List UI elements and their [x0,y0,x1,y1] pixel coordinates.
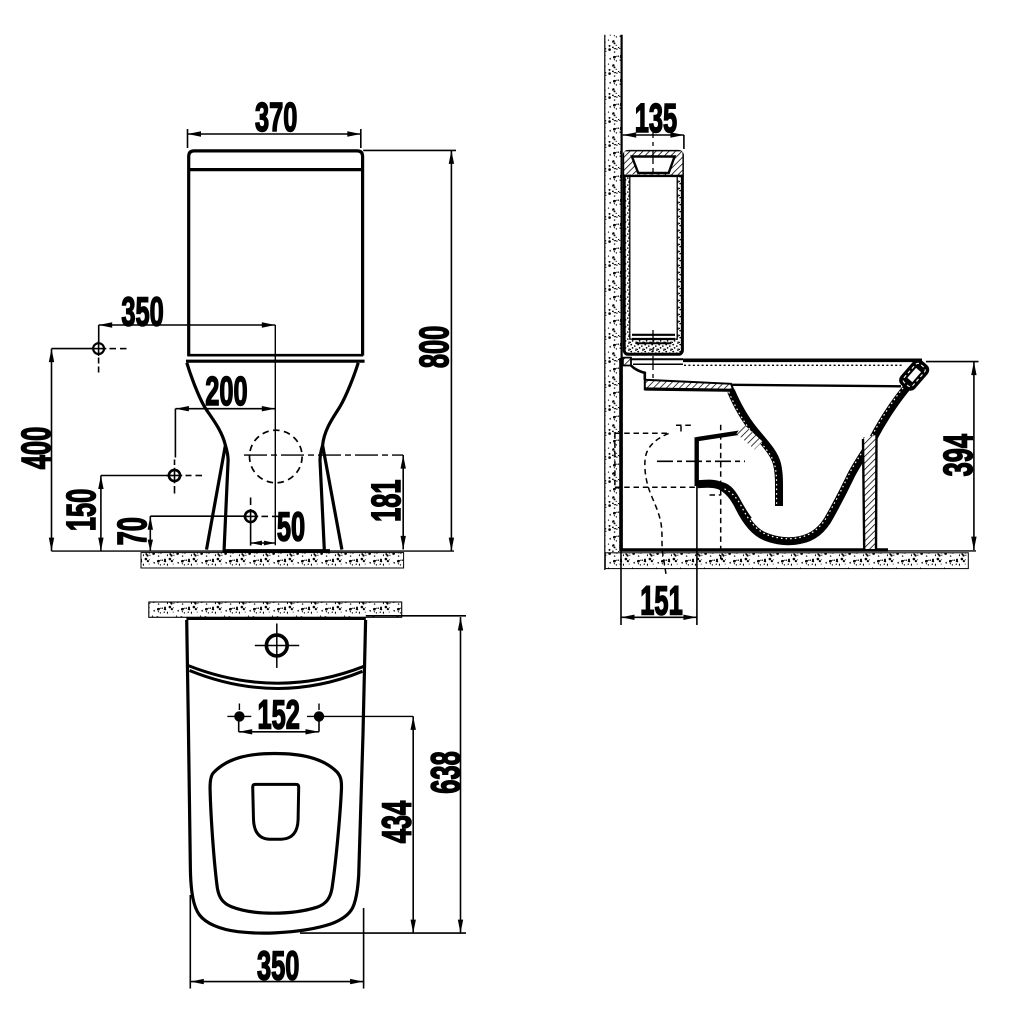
svg-text:434: 434 [375,801,421,843]
svg-text:200: 200 [205,369,247,415]
svg-text:394: 394 [936,434,982,476]
svg-text:370: 370 [255,95,297,141]
svg-text:50: 50 [277,504,305,550]
svg-text:150: 150 [59,489,105,531]
svg-text:152: 152 [257,693,299,739]
svg-text:350: 350 [257,943,299,989]
svg-text:638: 638 [423,751,469,793]
svg-text:400: 400 [14,427,60,469]
svg-text:350: 350 [121,290,163,336]
svg-text:70: 70 [110,517,156,545]
svg-text:181: 181 [364,479,410,521]
svg-text:800: 800 [412,326,458,368]
svg-text:151: 151 [640,579,682,625]
svg-text:135: 135 [635,96,677,142]
